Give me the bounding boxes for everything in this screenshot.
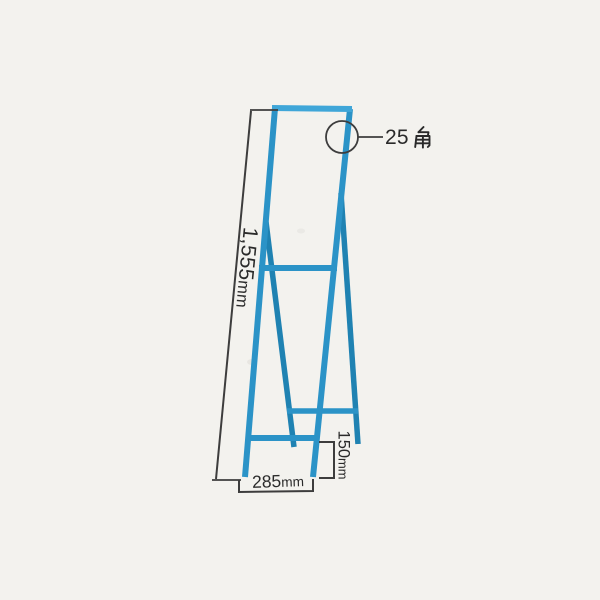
- kaku-stroke: [415, 136, 416, 147]
- rung-height-label: 150mm: [335, 431, 353, 480]
- scan-smudge: [297, 229, 305, 234]
- top-bar: [272, 108, 352, 109]
- sign-stand-illustration: 1,555mm 285mm 150mm 25: [0, 0, 600, 600]
- diagram-canvas: 1,555mm 285mm 150mm 25: [0, 0, 600, 600]
- width-dimension-label: 285mm: [252, 470, 305, 492]
- paper-background: [0, 0, 600, 600]
- tube-size-number: 25: [385, 126, 409, 149]
